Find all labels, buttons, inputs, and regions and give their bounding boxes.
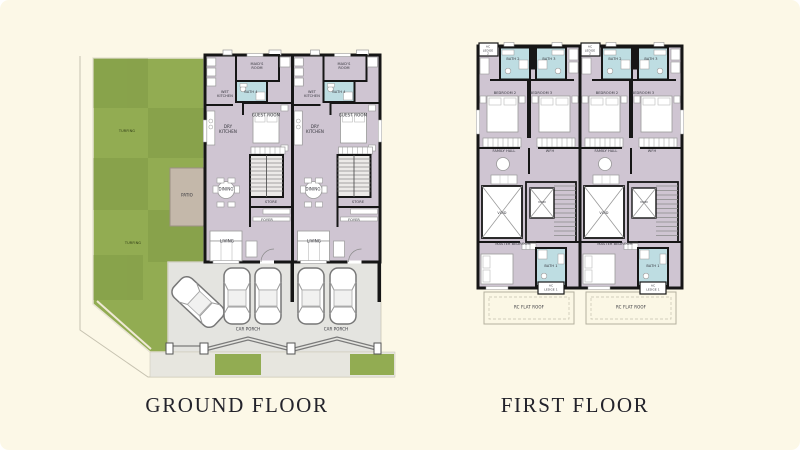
label-turfing: TURFING [119,129,135,133]
label-family-hall: FAMILY HALL [586,149,626,153]
first-floor-unit-2 [580,43,682,295]
label-car-porch: CAR PORCH [316,328,356,333]
label-dry-kitchen: DRY KITCHEN [305,125,325,135]
label-ac-ledge1: AC LEDGE 1 [646,284,660,291]
label-bath1: BATH 1 [646,264,659,268]
label-rc-flat-roof: RC FLAT ROOF [499,306,559,311]
label-bath2: BATH 2 [608,57,621,61]
label-wfh: WFH [648,149,656,153]
label-ac-ledge1: AC LEDGE 1 [544,284,558,291]
label-living: LIVING [220,240,234,245]
label-ac-ledge2: AC LEDGE 2 [482,46,495,57]
label-void: VOID [640,201,648,205]
label-bath1: BATH 1 [544,264,557,268]
label-patio: PATIO [181,194,193,199]
label-family-hall: FAMILY HALL [484,149,524,153]
label-dry-kitchen: DRY KITCHEN [218,125,238,135]
window [680,110,683,134]
label-living: LIVING [307,240,321,245]
label-ac-ledge2: AC LEDGE 2 [584,46,597,57]
car-unit1-b [255,268,281,324]
floorplan-brochure: TURFING TURFING PATIO MAID'S ROOM MAID'S… [0,0,800,450]
label-store: STORE [352,200,364,204]
label-dining: DINING [305,188,320,193]
label-guest-room: GUEST ROOM [336,114,370,119]
label-rc-flat-roof: RC FLAT ROOF [601,306,661,311]
window [476,110,479,134]
gate-post [200,343,208,354]
label-void: VOID [599,211,608,215]
party-wall [579,46,582,288]
label-master-bedroom: MASTER BEDROOM [489,242,537,246]
label-bath2: BATH 2 [506,57,519,61]
party-wall-post [291,262,295,302]
label-void: VOID [497,211,506,215]
label-bath4: BATH 4 [244,90,257,94]
ground-floor-unit-2 [293,50,381,264]
car-unit1-a [224,268,250,324]
label-maids-room: MAID'S ROOM [333,62,355,70]
floorplan-artwork [0,0,800,450]
label-wet-kitchen: WET KITCHEN [215,90,235,98]
first-floor-caption: FIRST FLOOR [501,393,650,418]
label-bedroom3: BEDROOM 3 [625,91,661,95]
label-guest-room: GUEST ROOM [249,114,283,119]
label-turfing: TURFING [125,241,141,245]
label-wfh: WFH [546,149,554,153]
car-unit2-b [330,268,356,324]
label-bath3: BATH 3 [542,57,555,61]
window [378,120,381,142]
label-master-bedroom: MASTER BEDROOM [591,242,639,246]
label-bedroom2: BEDROOM 2 [487,91,523,95]
label-bedroom3: BEDROOM 3 [523,91,559,95]
label-dining: DINING [218,188,233,193]
first-floor-unit-1 [478,43,580,295]
gate-post [166,343,173,354]
label-wet-kitchen: WET KITCHEN [302,90,322,98]
label-bedroom2: BEDROOM 2 [589,91,625,95]
label-car-porch: CAR PORCH [228,328,268,333]
ground-floor-caption: GROUND FLOOR [145,393,328,418]
planting-strip [215,354,261,375]
label-bath4: BATH 4 [332,90,345,94]
label-foyer: FOYER [348,218,360,222]
label-store: STORE [265,200,277,204]
label-void: VOID [538,201,546,205]
gate-post [287,343,295,354]
label-bath3: BATH 3 [644,57,657,61]
planting-strip [350,354,394,375]
first-floor-plan [476,43,683,325]
window [203,120,206,142]
boundary-wall-post [378,262,382,302]
gate-post [374,343,381,354]
label-maids-room: MAID'S ROOM [246,62,268,70]
ground-floor-unit-1 [205,50,293,264]
car-unit2-a [298,268,324,324]
label-foyer: FOYER [261,218,273,222]
